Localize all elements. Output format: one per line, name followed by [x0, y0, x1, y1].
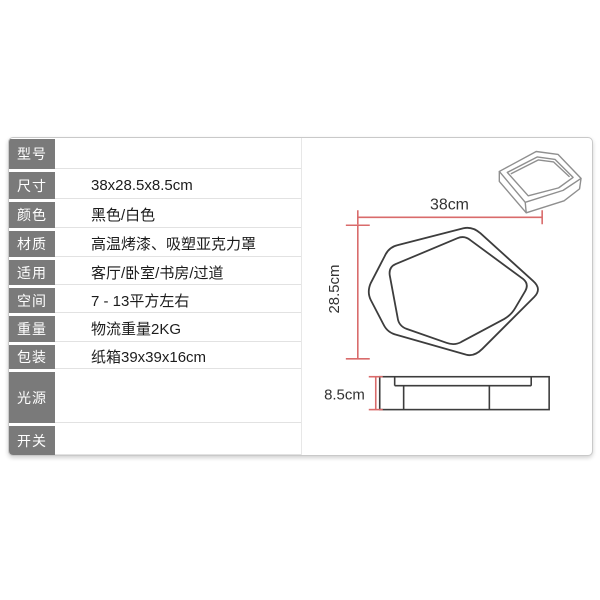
row-value-model [55, 139, 301, 169]
table-row: 重量 物流重量2KG [9, 316, 301, 342]
table-row: 空间 7 - 13平方左右 [9, 288, 301, 313]
row-label-model: 型号 [9, 139, 55, 169]
depth-dimension-label: 28.5cm [326, 265, 343, 314]
row-value-material: 高温烤漆、吸塑亚克力罩 [55, 231, 301, 257]
row-label-packaging: 包装 [9, 345, 55, 369]
row-value-packaging: 纸箱39x39x16cm [55, 345, 301, 369]
row-value-size: 38x28.5x8.5cm [55, 172, 301, 199]
table-row: 包装 纸箱39x39x16cm [9, 345, 301, 369]
table-row: 材质 高温烤漆、吸塑亚克力罩 [9, 231, 301, 257]
table-row: 适用 客厅/卧室/书房/过道 [9, 260, 301, 285]
spec-panel: 型号 尺寸 38x28.5x8.5cm 颜色 黑色/白色 材质 高温烤漆、吸塑亚… [8, 137, 593, 456]
table-row: 开关 [9, 426, 301, 455]
table-row: 颜色 黑色/白色 [9, 202, 301, 228]
height-dimension-line [369, 377, 383, 410]
row-label-lightsource: 光源 [9, 372, 55, 423]
row-label-switch: 开关 [9, 426, 55, 455]
spec-table: 型号 尺寸 38x28.5x8.5cm 颜色 黑色/白色 材质 高温烤漆、吸塑亚… [9, 138, 301, 455]
row-label-size: 尺寸 [9, 172, 55, 199]
height-dimension-label: 8.5cm [324, 387, 365, 404]
width-dimension-label: 38cm [430, 196, 469, 213]
table-row: 光源 [9, 372, 301, 423]
row-value-switch [55, 426, 301, 455]
row-value-usage: 客厅/卧室/书房/过道 [55, 260, 301, 285]
lamp-side-view [380, 377, 549, 410]
row-value-weight: 物流重量2KG [55, 316, 301, 342]
depth-dimension-line [346, 224, 370, 359]
row-label-space: 空间 [9, 288, 55, 313]
dimension-drawing: 38cm 28.5cm [301, 138, 592, 455]
row-label-usage: 适用 [9, 260, 55, 285]
row-label-color: 颜色 [9, 202, 55, 228]
row-label-material: 材质 [9, 231, 55, 257]
lamp-top-view-inner-outline [390, 237, 527, 344]
table-row: 型号 [9, 139, 301, 169]
row-value-lightsource [55, 372, 301, 423]
table-row: 尺寸 38x28.5x8.5cm [9, 172, 301, 199]
row-value-color: 黑色/白色 [55, 202, 301, 228]
product-spec-image: 型号 尺寸 38x28.5x8.5cm 颜色 黑色/白色 材质 高温烤漆、吸塑亚… [0, 0, 600, 600]
lamp-top-view-outer-outline [369, 228, 538, 355]
dimension-drawing-svg: 38cm 28.5cm [302, 138, 592, 455]
row-label-weight: 重量 [9, 316, 55, 342]
row-value-space: 7 - 13平方左右 [55, 288, 301, 313]
lamp-3d-sketch [499, 152, 581, 213]
